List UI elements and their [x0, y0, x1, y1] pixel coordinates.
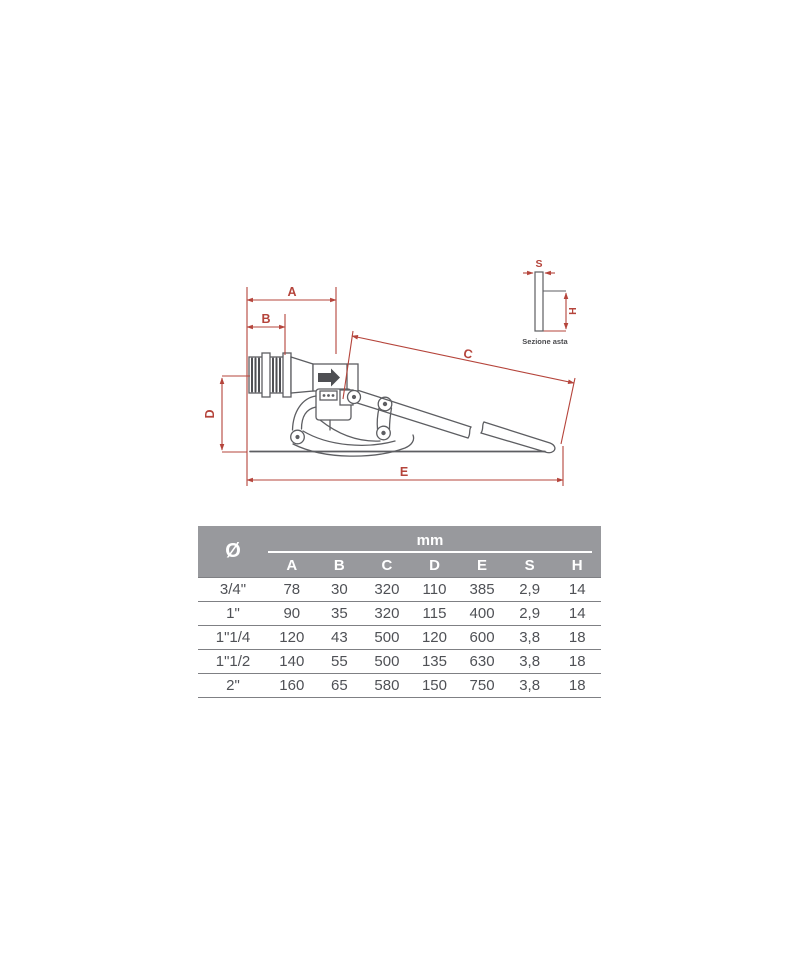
table-row: 1"1/2 140 55 500 135 630 3,8 18 — [198, 650, 601, 674]
value-cell: 55 — [316, 653, 364, 670]
col-header-h: H — [553, 557, 601, 574]
value-cell: 110 — [411, 581, 459, 598]
dim-label-c: C — [462, 346, 474, 362]
col-header-a: A — [268, 557, 316, 574]
dim-label-d: D — [203, 409, 217, 418]
dim-label-a: A — [287, 285, 296, 299]
col-header-b: B — [316, 557, 364, 574]
unit-header: mm — [268, 526, 592, 553]
size-cell: 1"1/2 — [198, 653, 268, 670]
value-cell: 120 — [411, 629, 459, 646]
catalog-page: { "drawing": { "labels": { "a": "A", "b"… — [0, 0, 800, 960]
rod-section-detail — [523, 272, 566, 331]
value-cell: 385 — [458, 581, 506, 598]
value-cell: 30 — [316, 581, 364, 598]
value-cell: 18 — [553, 677, 601, 694]
value-cell: 2,9 — [506, 581, 554, 598]
value-cell: 630 — [458, 653, 506, 670]
value-cell: 160 — [268, 677, 316, 694]
section-caption: Sezione asta — [522, 337, 568, 346]
value-cell: 78 — [268, 581, 316, 598]
size-cell: 1" — [198, 605, 268, 622]
valve-technical-drawing: A B C D E S H Sezione asta — [190, 248, 610, 500]
dimensions-table: Ø mm A B C D E S H 3/4" 78 30 320 110 38… — [198, 526, 601, 698]
value-cell: 320 — [363, 581, 411, 598]
value-cell: 65 — [316, 677, 364, 694]
column-headers: A B C D E S H — [268, 553, 601, 577]
dim-label-h: H — [566, 307, 578, 315]
table-row: 1" 90 35 320 115 400 2,9 14 — [198, 602, 601, 626]
unit-label: mm — [417, 532, 444, 549]
value-cell: 115 — [411, 605, 459, 622]
value-cell: 2,9 — [506, 605, 554, 622]
value-cell: 14 — [553, 581, 601, 598]
value-cell: 3,8 — [506, 653, 554, 670]
value-cell: 500 — [363, 653, 411, 670]
size-cell: 2" — [198, 677, 268, 694]
size-cell: 1"1/4 — [198, 629, 268, 646]
col-header-d: D — [411, 557, 459, 574]
value-cell: 18 — [553, 653, 601, 670]
col-header-c: C — [363, 557, 411, 574]
value-cell: 14 — [553, 605, 601, 622]
value-cell: 135 — [411, 653, 459, 670]
table-row: 3/4" 78 30 320 110 385 2,9 14 — [198, 577, 601, 602]
col-header-e: E — [458, 557, 506, 574]
size-cell: 3/4" — [198, 581, 268, 598]
value-cell: 3,8 — [506, 629, 554, 646]
value-cell: 400 — [458, 605, 506, 622]
value-cell: 120 — [268, 629, 316, 646]
table-header: Ø mm A B C D E S H — [198, 526, 601, 577]
value-cell: 750 — [458, 677, 506, 694]
dim-label-e: E — [400, 465, 408, 479]
value-cell: 150 — [411, 677, 459, 694]
col-header-s: S — [506, 557, 554, 574]
value-cell: 320 — [363, 605, 411, 622]
value-cell: 18 — [553, 629, 601, 646]
value-cell: 140 — [268, 653, 316, 670]
table-row: 1"1/4 120 43 500 120 600 3,8 18 — [198, 626, 601, 650]
value-cell: 90 — [268, 605, 316, 622]
value-cell: 43 — [316, 629, 364, 646]
float-valve-diagram: A B C D E S H Sezione asta — [190, 248, 610, 500]
dim-label-s: S — [535, 258, 542, 270]
value-cell: 600 — [458, 629, 506, 646]
value-cell: 35 — [316, 605, 364, 622]
value-cell: 500 — [363, 629, 411, 646]
dim-label-b: B — [261, 312, 270, 326]
value-cell: 3,8 — [506, 677, 554, 694]
table-row: 2" 160 65 580 150 750 3,8 18 — [198, 674, 601, 698]
diameter-header: Ø — [198, 526, 268, 577]
value-cell: 580 — [363, 677, 411, 694]
valve-body-linework — [249, 353, 555, 456]
